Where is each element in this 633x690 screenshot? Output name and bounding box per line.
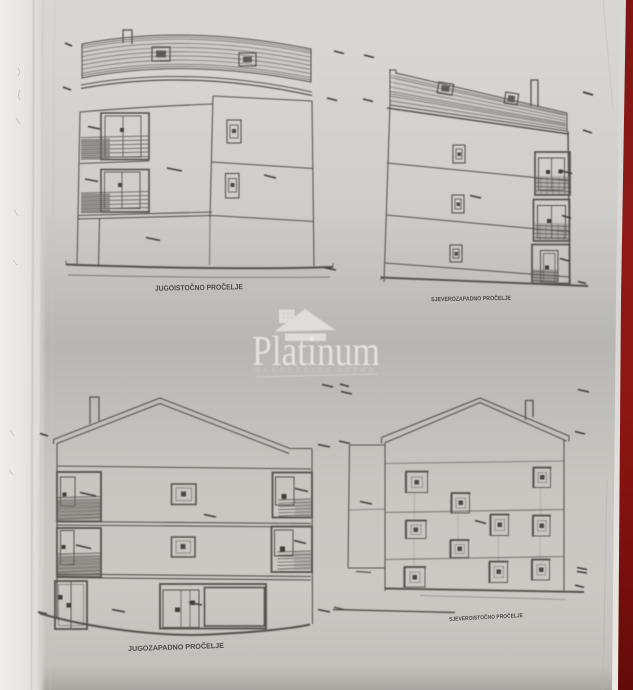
svg-text:NEKRETNINE ISTRA: NEKRETNINE ISTRA	[255, 368, 377, 375]
svg-text:SJEVEROZAPADNO PROČELJE: SJEVEROZAPADNO PROČELJE	[431, 295, 511, 303]
svg-text:JUGOISTOČNO PROČELJE: JUGOISTOČNO PROČELJE	[155, 282, 243, 293]
